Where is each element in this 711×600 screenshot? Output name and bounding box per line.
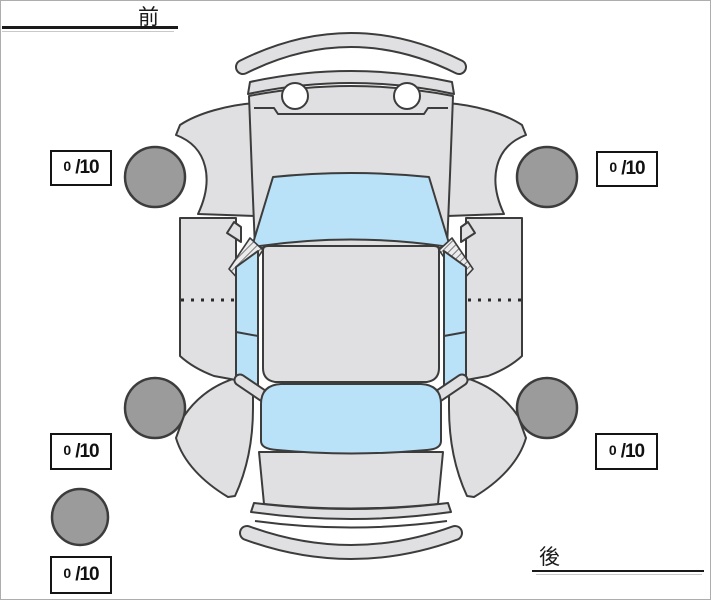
front-bumper <box>243 40 459 67</box>
side-window-right <box>444 251 466 391</box>
tire-rear-right <box>517 378 577 438</box>
rear-divider-line <box>532 570 704 572</box>
rating-scale: /10 <box>621 441 644 463</box>
fender-rear-right <box>449 374 526 497</box>
rating-box-rear-right[interactable]: 0 /10 <box>595 433 658 470</box>
rating-scale: /10 <box>75 564 98 586</box>
rating-scale: /10 <box>75 441 98 463</box>
windshield-glass <box>254 173 449 246</box>
headlight-right <box>394 83 420 109</box>
door-panel-right <box>466 218 522 380</box>
rating-value: 0 <box>609 442 617 458</box>
fender-rear-left <box>176 374 253 497</box>
rating-box-front-left[interactable]: 0 /10 <box>50 150 112 186</box>
rear-divider-shadow <box>536 574 702 575</box>
rating-box-spare[interactable]: 0 /10 <box>50 556 112 594</box>
rating-value: 0 <box>63 158 71 174</box>
tire-front-left <box>125 147 185 207</box>
tire-front-right <box>517 147 577 207</box>
rating-value: 0 <box>63 565 71 581</box>
car-top-view-diagram <box>0 0 711 600</box>
trunk-panel <box>259 452 443 509</box>
side-window-left <box>236 251 258 391</box>
rear-direction-label: 後 <box>539 541 560 571</box>
rating-scale: /10 <box>75 157 98 179</box>
trunk-seam-line <box>255 521 447 528</box>
rating-box-front-right[interactable]: 0 /10 <box>596 151 658 187</box>
rating-value: 0 <box>63 442 71 458</box>
rating-scale: /10 <box>621 158 644 180</box>
front-divider-line <box>2 26 178 29</box>
door-panel-left <box>180 218 236 380</box>
front-divider-shadow <box>2 31 174 32</box>
fender-front-left <box>176 103 255 216</box>
tire-rear-left <box>125 378 185 438</box>
headlight-left <box>282 83 308 109</box>
fender-front-right <box>447 103 526 216</box>
roof-panel <box>263 246 439 382</box>
rating-value: 0 <box>609 159 617 175</box>
spare-tire <box>52 489 108 545</box>
rating-box-rear-left[interactable]: 0 /10 <box>50 433 112 470</box>
rear-window-glass <box>261 384 441 454</box>
